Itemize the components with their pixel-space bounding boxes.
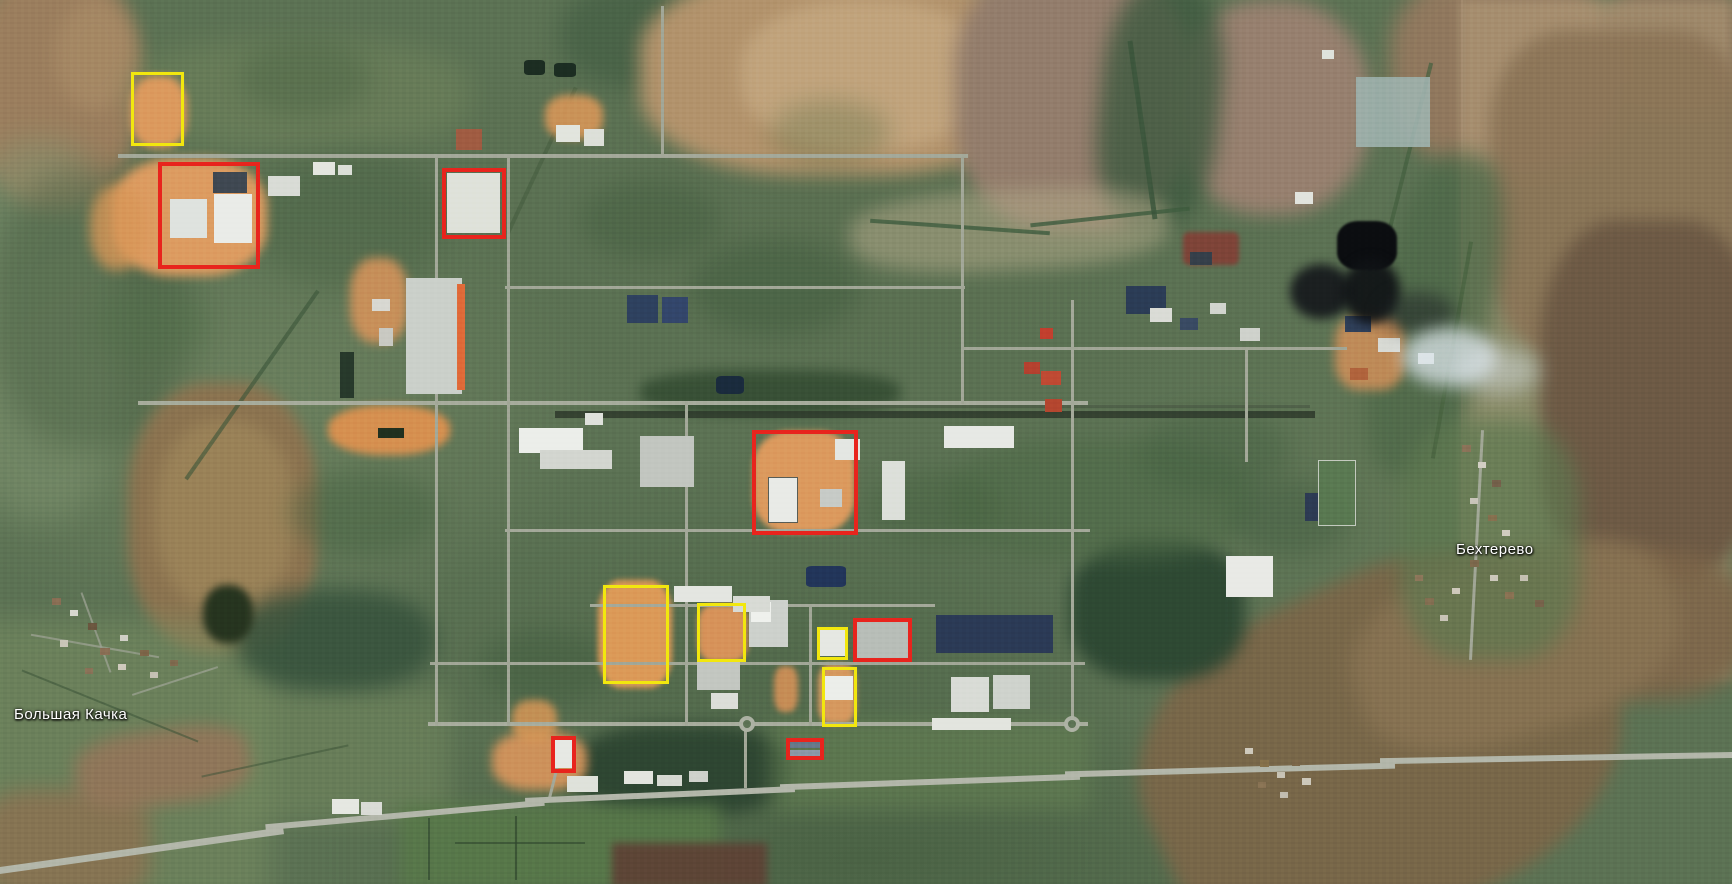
annotation-box-red-4 xyxy=(853,618,912,662)
annotation-box-red-3 xyxy=(752,430,858,535)
place-label-bolshaya-kachka: Большая Качка xyxy=(14,706,127,723)
annotation-box-red-5 xyxy=(551,736,576,773)
satellite-map[interactable]: Большая Качка Бехтерево xyxy=(0,0,1732,884)
annotation-layer xyxy=(0,0,1732,884)
place-label-bekhterevo: Бехтерево xyxy=(1456,541,1534,558)
annotation-box-yellow-9 xyxy=(697,603,746,662)
annotation-box-yellow-11 xyxy=(822,667,857,727)
annotation-box-red-6 xyxy=(786,738,824,760)
annotation-box-yellow-7 xyxy=(131,72,184,146)
annotation-box-red-1 xyxy=(158,162,260,269)
annotation-box-red-2 xyxy=(442,168,506,239)
annotation-box-yellow-8 xyxy=(603,585,669,684)
annotation-box-yellow-10 xyxy=(817,627,848,660)
